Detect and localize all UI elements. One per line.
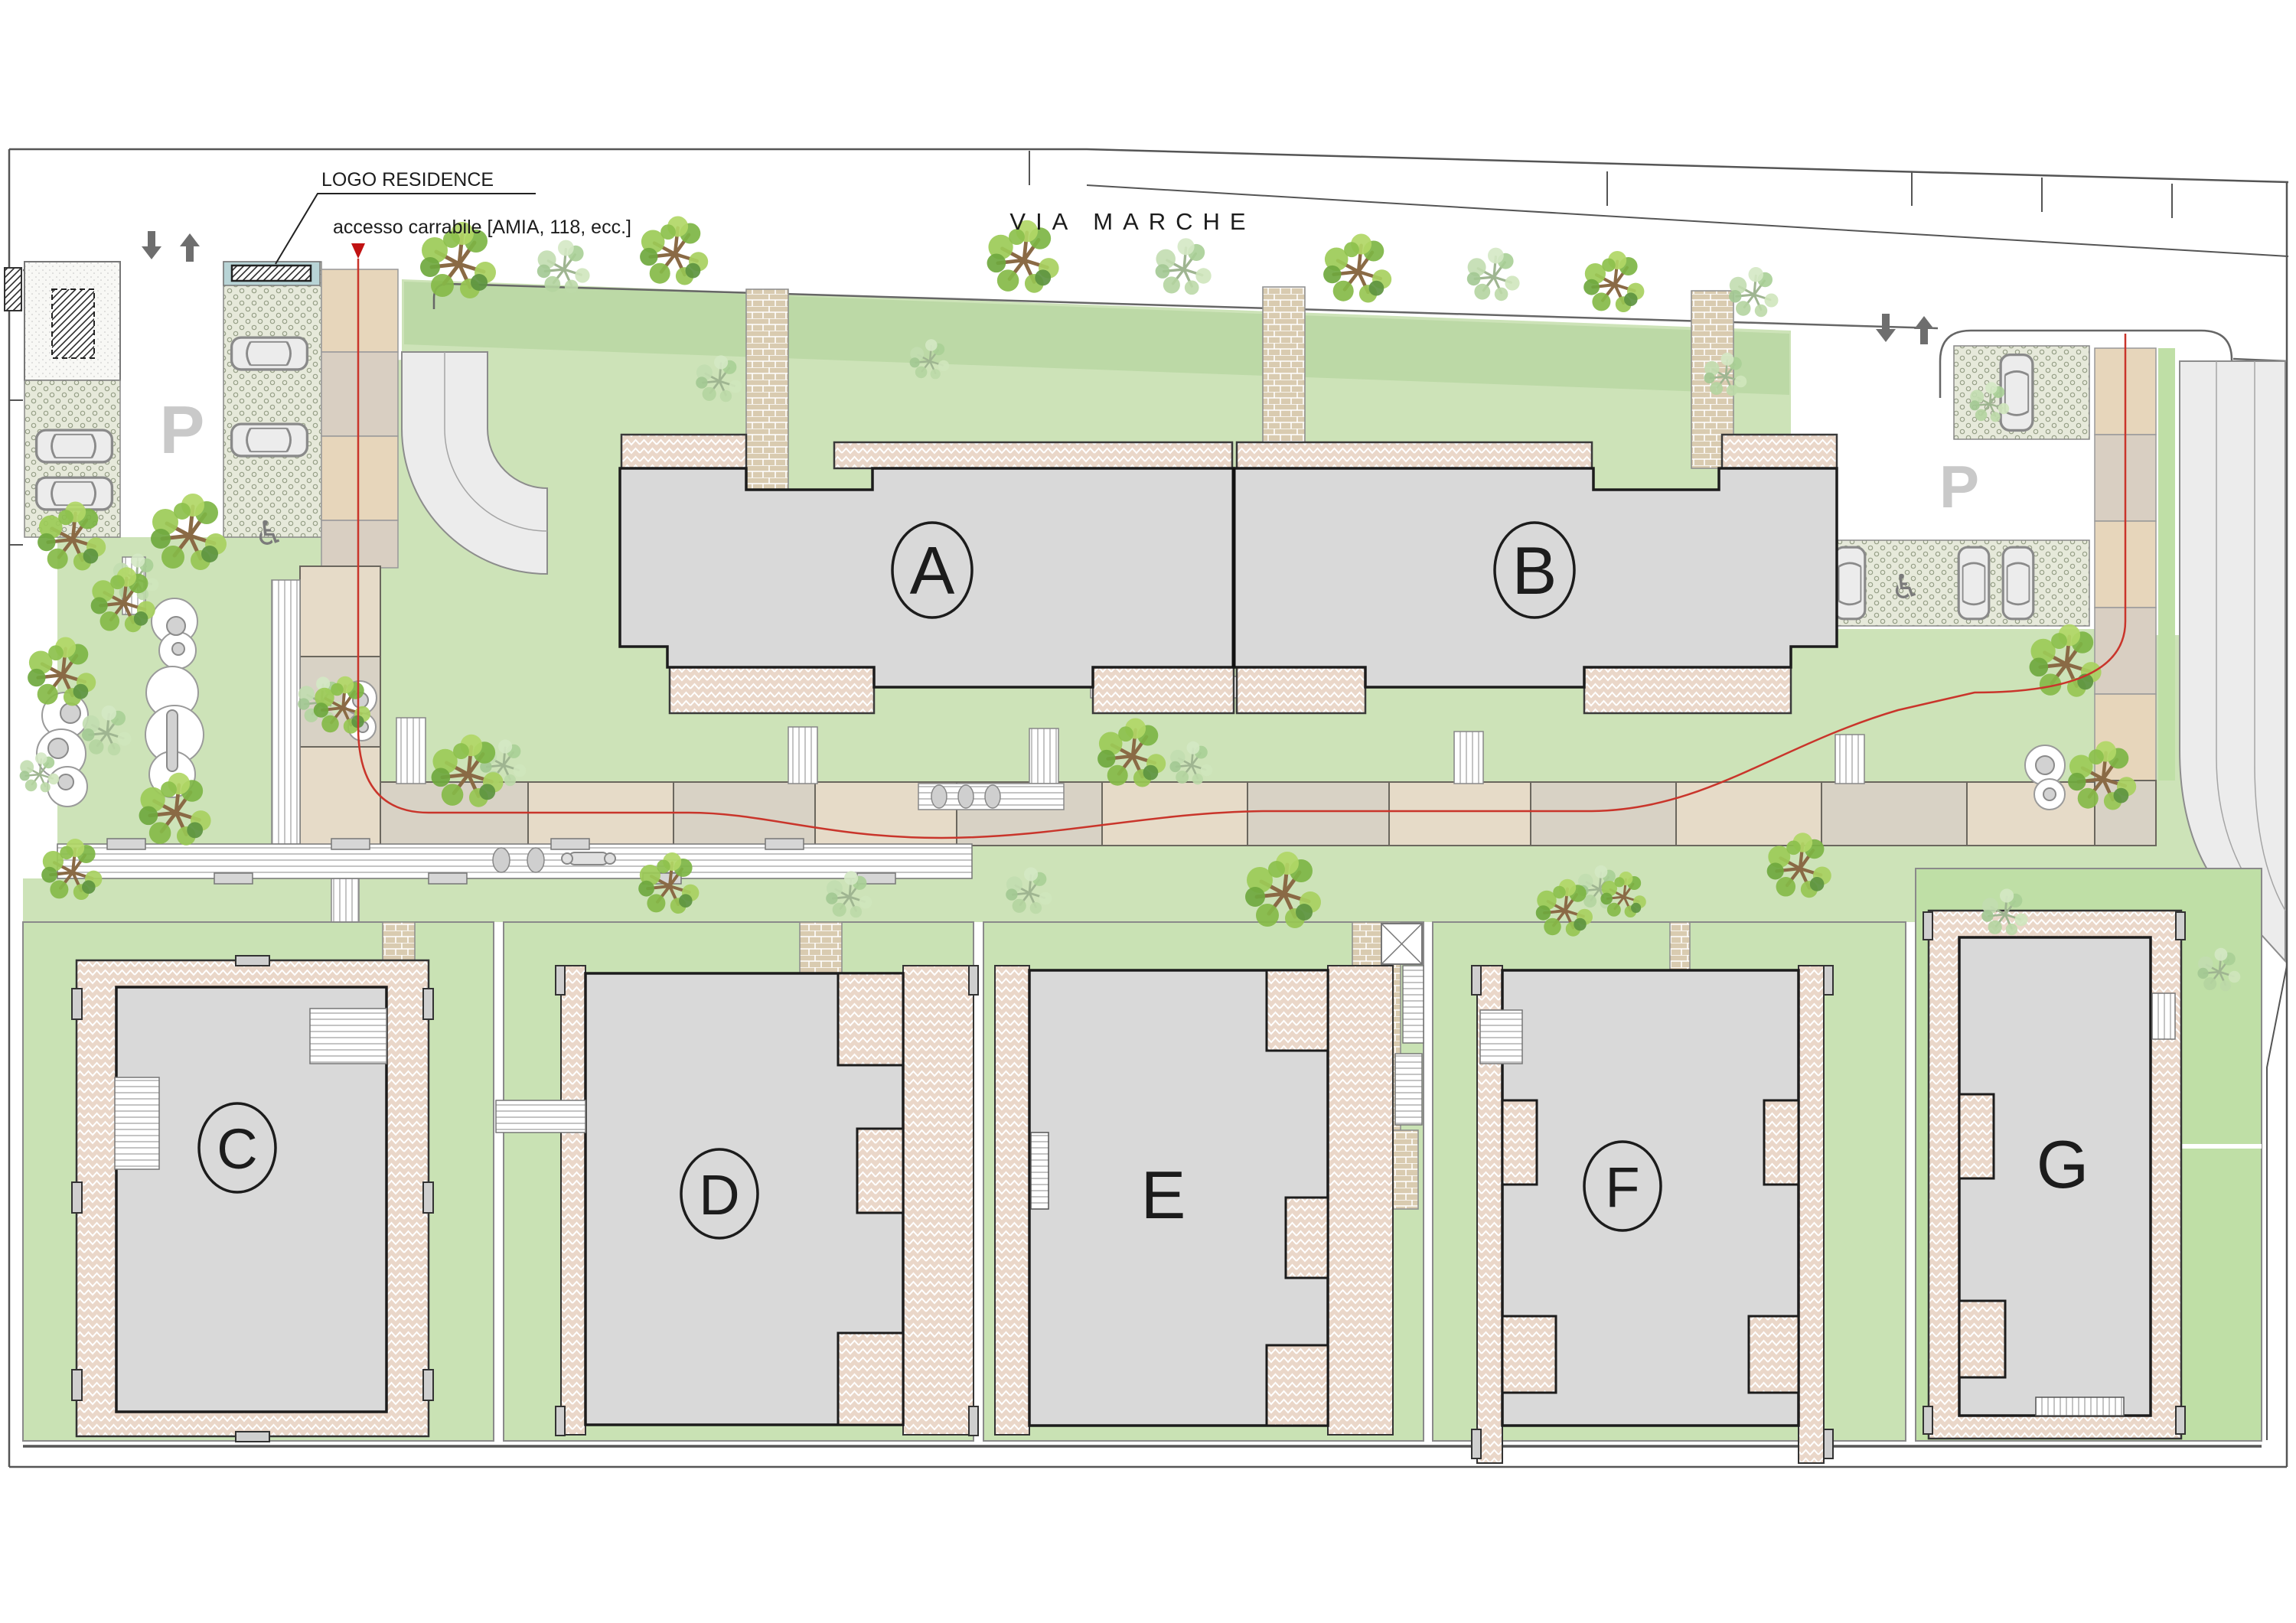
parking-stalls xyxy=(223,262,321,537)
bench xyxy=(562,852,615,865)
parked-car xyxy=(2001,355,2033,431)
parked-car xyxy=(232,337,308,370)
building-e: E xyxy=(995,966,1393,1435)
stairs xyxy=(1403,966,1424,1043)
building-label-b: B xyxy=(1512,533,1557,608)
building-label-e: E xyxy=(1141,1157,1186,1233)
footbridge xyxy=(496,1100,585,1133)
entry-arrow-down-icon xyxy=(1876,314,1896,342)
parked-car xyxy=(2003,547,2033,619)
exit-arrow-up-icon xyxy=(180,233,200,262)
planter-pot xyxy=(958,785,974,808)
building-d: D xyxy=(496,966,978,1436)
stairs xyxy=(1031,1133,1049,1209)
boardwalk xyxy=(57,839,972,884)
building-label-g: G xyxy=(2037,1126,2089,1202)
parked-car xyxy=(1958,547,1989,619)
margin-hatch-block xyxy=(5,268,21,311)
planter-pot xyxy=(931,785,947,808)
stairs xyxy=(2036,1397,2124,1416)
logo-annotation-label: LOGO RESIDENCE xyxy=(321,169,494,191)
building-c: C xyxy=(72,956,433,1442)
access-annotation-label: accesso carrabile [AMIA, 118, ecc.] xyxy=(333,217,631,238)
building-a: A xyxy=(620,435,1234,713)
exit-arrow-up-icon xyxy=(1914,316,1934,344)
planter-pot xyxy=(527,848,544,872)
accessible-parking-icon: ♿ xyxy=(254,515,284,552)
building-label-a: A xyxy=(910,533,955,608)
building-f: F xyxy=(1472,966,1833,1463)
entrance-driveway xyxy=(321,269,398,568)
building-label-c: C xyxy=(217,1117,257,1181)
via-marche-road xyxy=(9,149,2288,256)
parking-letter-left: P xyxy=(160,392,205,468)
residence-logo-sign xyxy=(232,266,311,281)
building-b: B xyxy=(1234,435,1837,713)
entry-arrow-down-icon xyxy=(142,231,161,259)
parking-aisle xyxy=(1875,439,2089,540)
site-plan-drawing: P ♿ P ♿ xyxy=(0,0,2296,1623)
site-plan-canvas: P ♿ P ♿ xyxy=(0,0,2296,1623)
access-annotation: accesso carrabile [AMIA, 118, ecc.] xyxy=(333,217,631,259)
building-label-d: D xyxy=(699,1163,739,1227)
accessible-parking-icon: ♿ xyxy=(1890,569,1920,606)
building-label-f: F xyxy=(1605,1155,1639,1219)
parking-letter-right: P xyxy=(1939,453,1979,520)
parked-car xyxy=(232,424,308,456)
street-name-label: VIA MARCHE xyxy=(1009,208,1255,235)
building-g: G xyxy=(1923,911,2185,1439)
parked-car xyxy=(37,430,113,462)
promenade-deck xyxy=(918,784,1064,810)
planter-pot xyxy=(493,848,510,872)
planter-pot xyxy=(985,785,1000,808)
parked-car xyxy=(1835,547,1865,619)
right-driveway-green xyxy=(2158,348,2175,781)
service-structure xyxy=(52,289,94,358)
access-marker-icon xyxy=(351,243,365,259)
